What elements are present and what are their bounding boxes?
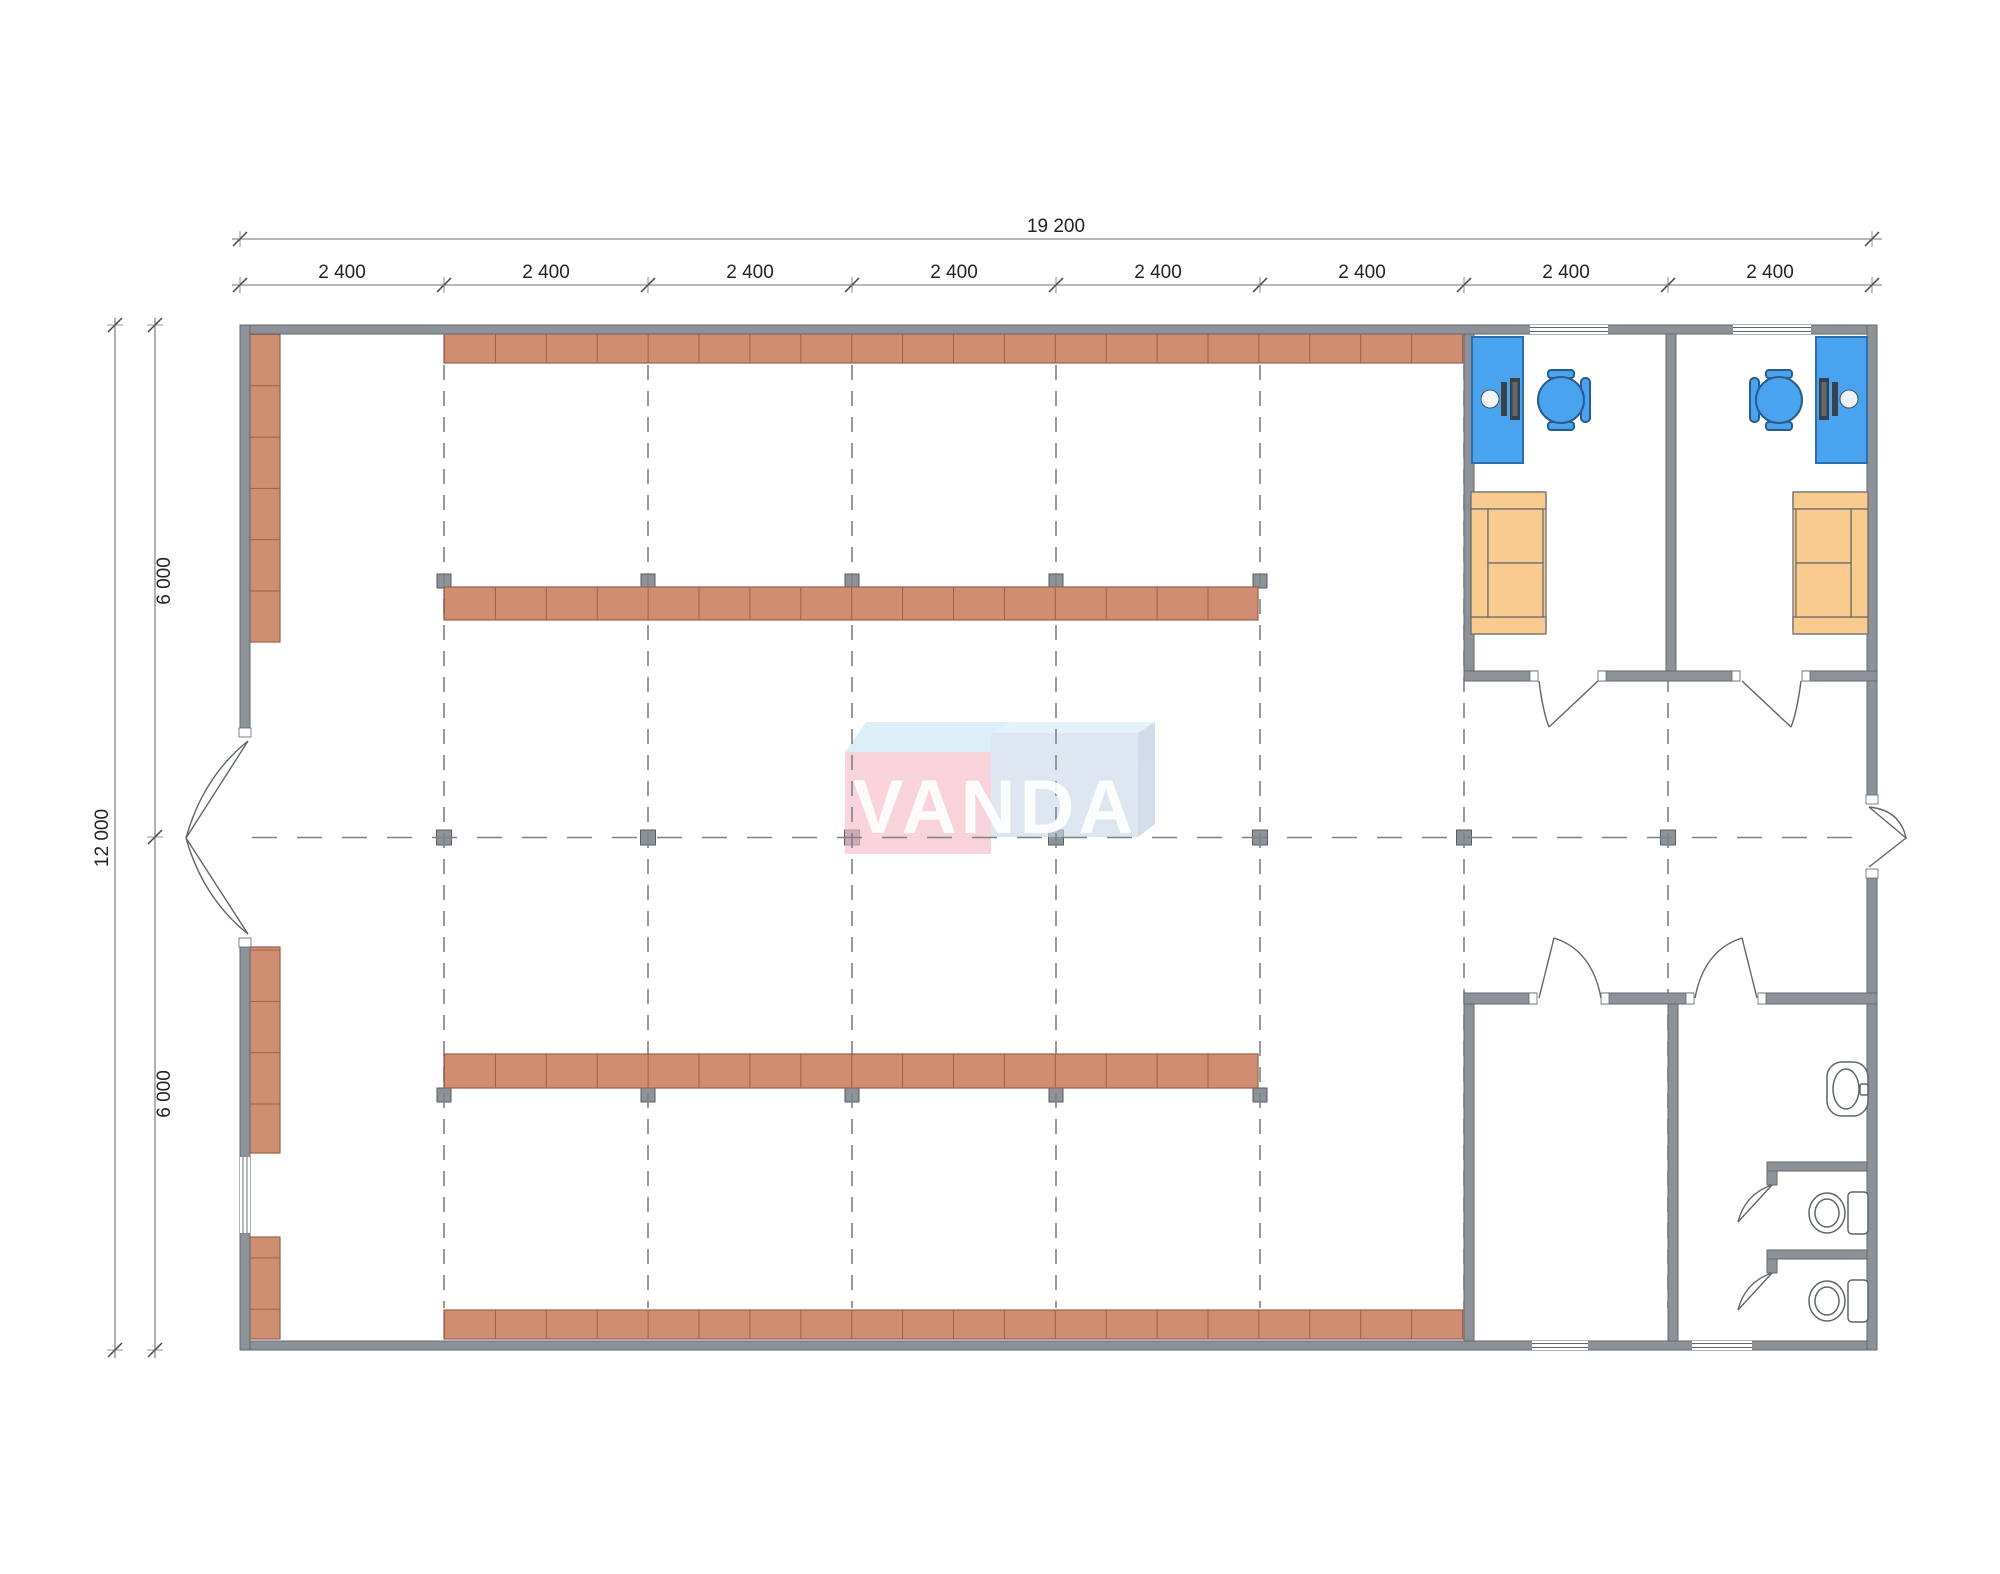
- toilet-tank: [1848, 1280, 1868, 1322]
- wall-toilet-stall-2: [1767, 1250, 1867, 1259]
- door-jamb: [1598, 671, 1606, 681]
- door-jamb: [1732, 671, 1740, 681]
- opening-bath-door-2: [1694, 992, 1758, 1005]
- dim-label-seg-7: 2 400: [1542, 262, 1590, 283]
- dim-label-seg-8: 2 400: [1746, 262, 1794, 283]
- door-jamb: [239, 728, 251, 737]
- floor-plan-canvas: 19 200 2 400 2 400 2 400 2 400 2 400 2 4…: [0, 0, 2000, 1574]
- door-jamb: [1866, 869, 1878, 878]
- wall-bathroom-top: [1464, 993, 1877, 1004]
- sofa-back: [1471, 509, 1488, 617]
- dim-label-seg-5: 2 400: [1134, 262, 1182, 283]
- wall-toilet-stall-1: [1767, 1162, 1867, 1171]
- bath-door-2: [1695, 938, 1757, 998]
- shelf-divider-overlay: [250, 947, 280, 1153]
- sofa-arm: [1793, 492, 1868, 509]
- sink-faucet: [1860, 1084, 1868, 1095]
- watermark-blue-side-face: [1138, 722, 1155, 837]
- dim-label-left-seg-1: 6 000: [154, 557, 175, 605]
- dim-label-seg-6: 2 400: [1338, 262, 1386, 283]
- chair-seat: [1756, 377, 1802, 423]
- door-jamb: [1530, 671, 1538, 681]
- toilet-seat: [1815, 1287, 1839, 1315]
- watermark-pink-top-face: [845, 722, 1012, 752]
- desk-lamp-icon: [1481, 390, 1499, 408]
- watermark-blue-top-face: [991, 722, 1155, 733]
- dim-label-left-seg-2: 6 000: [154, 1070, 175, 1118]
- chair-seat: [1538, 377, 1584, 423]
- sofa-office-1: [1471, 492, 1546, 634]
- keyboard-keys: [1513, 382, 1518, 416]
- shelf-divider-overlay: [250, 1237, 280, 1339]
- office-chair-2: [1750, 370, 1802, 430]
- shelf-divider-overlay: [444, 334, 1464, 363]
- toilet-tank: [1848, 1192, 1868, 1234]
- sofa-cushion: [1796, 509, 1851, 563]
- wall-bathroom-middle: [1668, 1004, 1678, 1341]
- door-jamb: [1758, 993, 1766, 1004]
- toilet-2: [1809, 1280, 1868, 1322]
- dim-label-seg-3: 2 400: [726, 262, 774, 283]
- wall-bathroom-left: [1464, 1004, 1474, 1341]
- window-top-office-2: [1733, 325, 1811, 334]
- window-bottom-2: [1692, 1341, 1752, 1350]
- office-door-2: [1742, 681, 1801, 727]
- door-jamb: [1802, 671, 1810, 681]
- shelf-divider-overlay: [444, 1054, 1258, 1088]
- wall-toilet-stall-1-stub: [1767, 1171, 1777, 1185]
- sofa-back: [1851, 509, 1868, 617]
- sofa-cushion: [1796, 563, 1851, 617]
- monitor-icon: [1501, 382, 1507, 416]
- toilet-1: [1809, 1192, 1868, 1234]
- stall-door-1: [1738, 1185, 1772, 1222]
- opening-left-double-door: [239, 737, 251, 938]
- dim-label-seg-2: 2 400: [522, 262, 570, 283]
- monitor-icon: [1832, 382, 1838, 416]
- opening-office-door-2: [1740, 670, 1802, 682]
- sofa-arm: [1793, 617, 1868, 634]
- sofa-arm: [1471, 617, 1546, 634]
- window-left-wall: [240, 1157, 250, 1233]
- bath-door-1: [1539, 938, 1601, 998]
- wall-top: [240, 325, 1877, 334]
- sofa-arm: [1471, 492, 1546, 509]
- double-exit-door-left: [186, 741, 248, 934]
- keyboard-keys: [1822, 382, 1827, 416]
- wall-office-partition-middle: [1666, 334, 1676, 681]
- door-jamb: [1529, 993, 1537, 1004]
- vanda-watermark-text: VANDA: [853, 765, 1138, 850]
- toilet-seat: [1815, 1199, 1839, 1227]
- door-jamb: [1866, 795, 1878, 804]
- sofa-cushion: [1488, 509, 1543, 563]
- dim-label-seg-4: 2 400: [930, 262, 978, 283]
- sofa-office-2: [1793, 492, 1868, 634]
- window-bottom-1: [1532, 1341, 1588, 1350]
- window-top-office-1: [1530, 325, 1608, 334]
- dim-label-seg-1: 2 400: [318, 262, 366, 283]
- dim-label-total-height: 12 000: [92, 809, 113, 867]
- shelf-divider-overlay: [444, 587, 1258, 620]
- floor-plan-drawing: 19 200 2 400 2 400 2 400 2 400 2 400 2 4…: [0, 0, 2000, 1574]
- door-jamb: [1601, 993, 1609, 1004]
- sink-basin: [1833, 1069, 1859, 1109]
- shelf-divider-overlay: [444, 1310, 1464, 1339]
- sink: [1827, 1062, 1868, 1116]
- stall-door-2: [1738, 1273, 1772, 1310]
- wall-bottom: [240, 1341, 1877, 1350]
- sofa-cushion: [1488, 563, 1543, 617]
- wall-toilet-stall-2-stub: [1767, 1259, 1777, 1273]
- opening-office-door-1: [1538, 670, 1598, 682]
- office-door-1: [1539, 681, 1598, 727]
- wall-office-bottom: [1464, 671, 1877, 681]
- opening-bath-door-1: [1537, 992, 1601, 1005]
- dim-label-total-width: 19 200: [1027, 216, 1085, 237]
- shelf-divider-overlay: [250, 334, 280, 642]
- door-jamb: [1686, 993, 1694, 1004]
- desk-lamp-icon: [1840, 390, 1858, 408]
- door-jamb: [239, 938, 251, 947]
- bathroom-fixtures: [1809, 1062, 1868, 1322]
- office-chair-1: [1538, 370, 1590, 430]
